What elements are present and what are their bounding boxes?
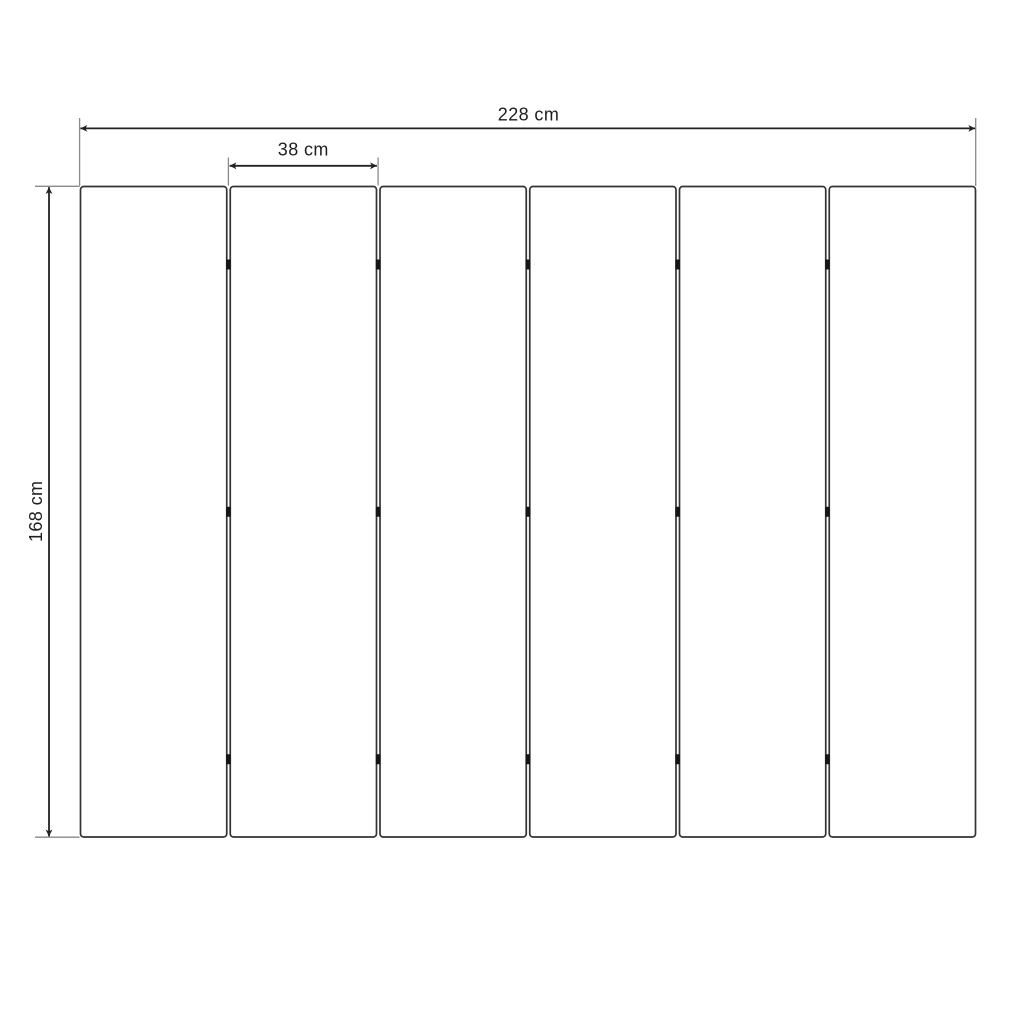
svg-text:228 cm: 228 cm [498, 105, 559, 125]
svg-text:168 cm: 168 cm [26, 481, 46, 542]
svg-text:38 cm: 38 cm [278, 140, 329, 160]
